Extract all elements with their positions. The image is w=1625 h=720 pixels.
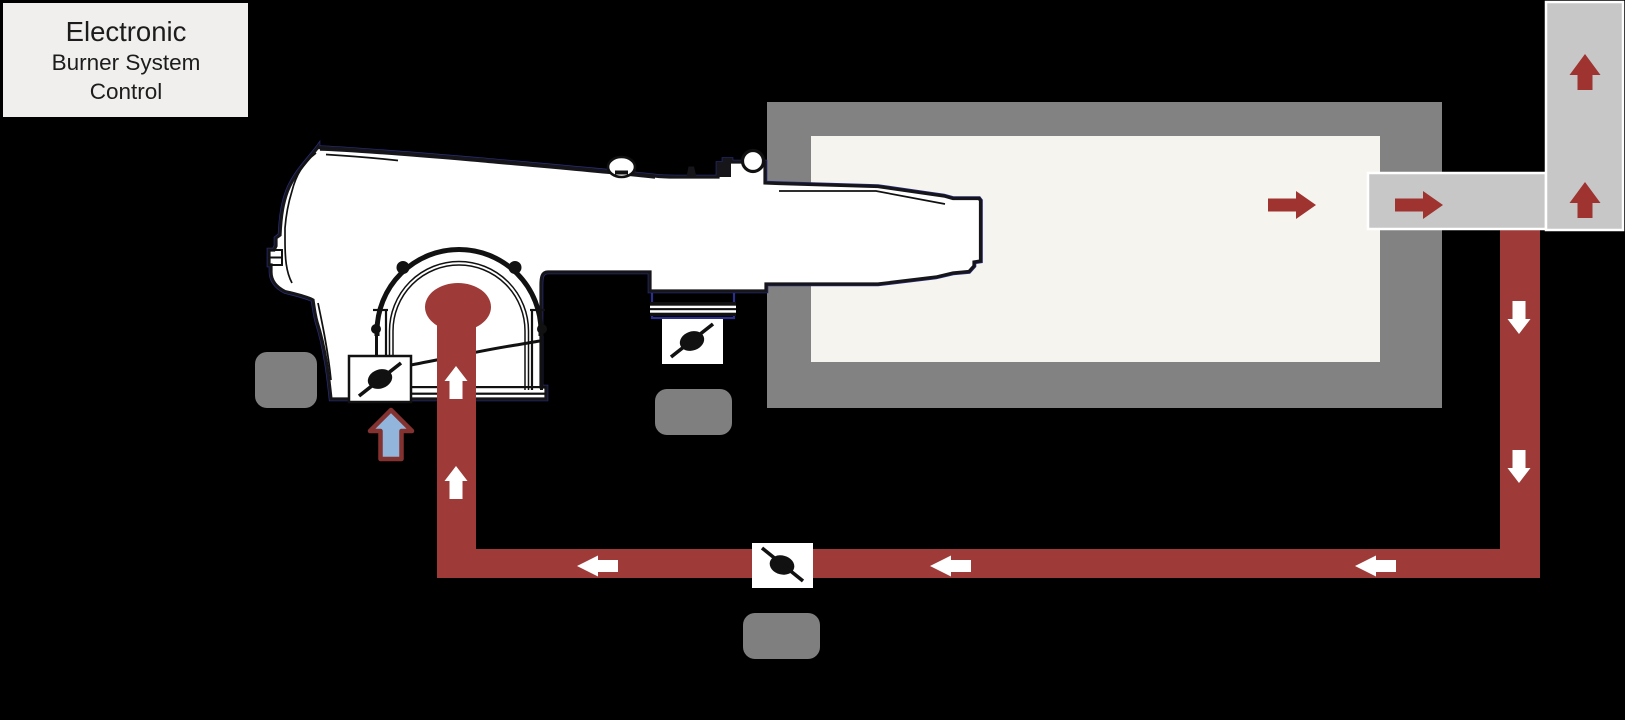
svg-text:Control: Control (90, 79, 163, 104)
svg-text:Burner System: Burner System (52, 50, 201, 75)
svg-text:Electronic: Electronic (66, 16, 187, 47)
